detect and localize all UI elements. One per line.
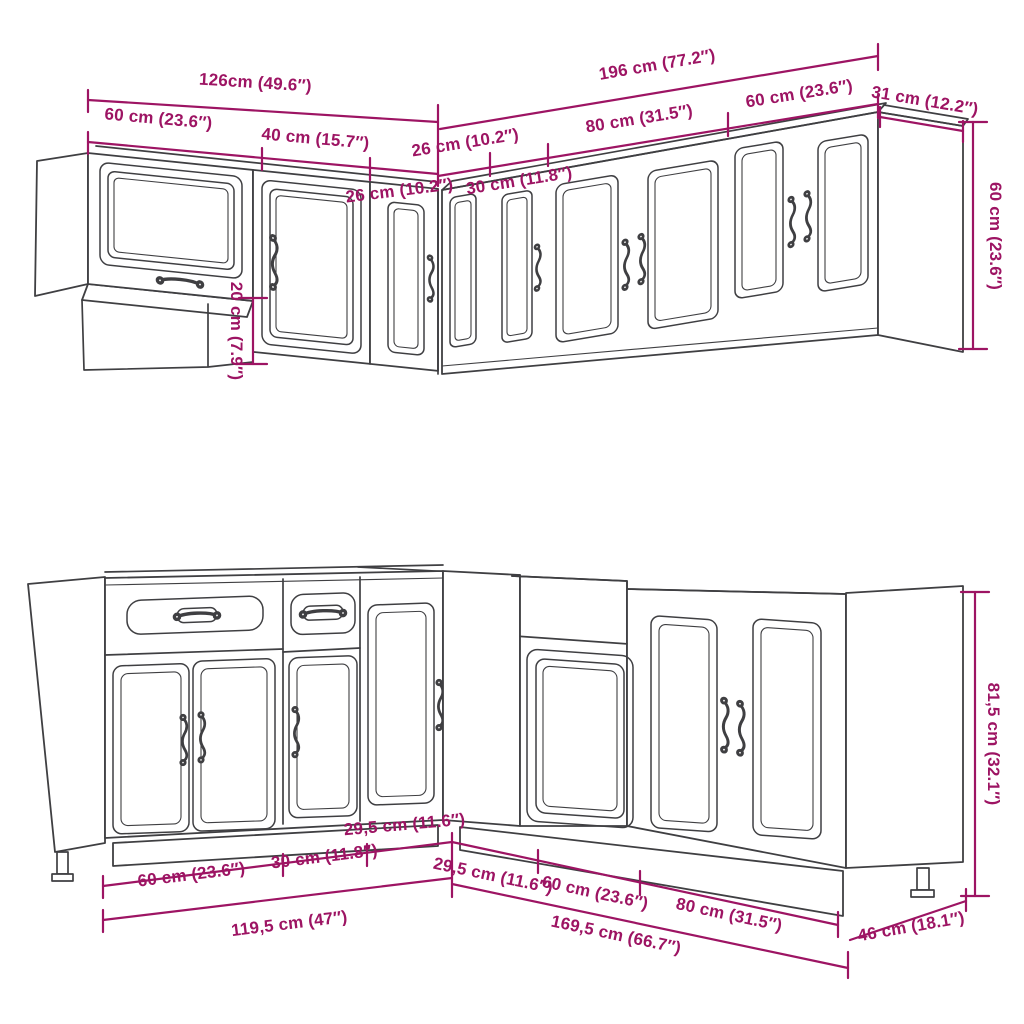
base-cabinet-run: [28, 565, 963, 916]
adjustable-leg-left: [52, 852, 73, 881]
base-corner-blind-panel: [443, 571, 520, 826]
dim-wall-overall-right: 196 cm (77.2″): [597, 45, 716, 83]
wall-side-panel: [878, 112, 963, 352]
base-left-run-front: [105, 571, 443, 838]
dim-wall-offset-height: 20 cm (7.9″): [227, 282, 246, 380]
dim-wall-seg-60: 60 cm (23.6″): [104, 104, 213, 132]
base-right-side-panel: [846, 586, 963, 868]
product-dimension-diagram: 126cm (49.6″) 196 cm (77.2″) 60 cm (23.6…: [0, 0, 1024, 1024]
dim-wall-seg-60-right: 60 cm (23.6″): [744, 76, 854, 112]
base-corner-60-front: [512, 575, 627, 826]
wall-cabinet-26cm-front: [370, 182, 438, 371]
dim-wall-seg-40: 40 cm (15.7″): [261, 124, 370, 152]
dim-wall-seg-26-right: 26 cm (10.2″): [410, 125, 520, 161]
wall-60-side-panel: [35, 153, 88, 296]
adjustable-leg-right: [911, 868, 934, 897]
base-left-side-panel: [28, 577, 105, 852]
dim-base-height: 81,5 cm (32.1″): [984, 683, 1003, 806]
dim-wall-height: 60 cm (23.6″): [986, 182, 1005, 290]
dim-wall-overall-left: 126cm (49.6″): [198, 69, 312, 95]
dim-base-side-depth: 46 cm (18.1″): [856, 908, 966, 945]
dim-wall-seg-80: 80 cm (31.5″): [584, 101, 694, 137]
diagram-canvas: 126cm (49.6″) 196 cm (77.2″) 60 cm (23.6…: [0, 0, 1024, 1024]
dim-base-overall-left: 119,5 cm (47″): [230, 907, 348, 940]
